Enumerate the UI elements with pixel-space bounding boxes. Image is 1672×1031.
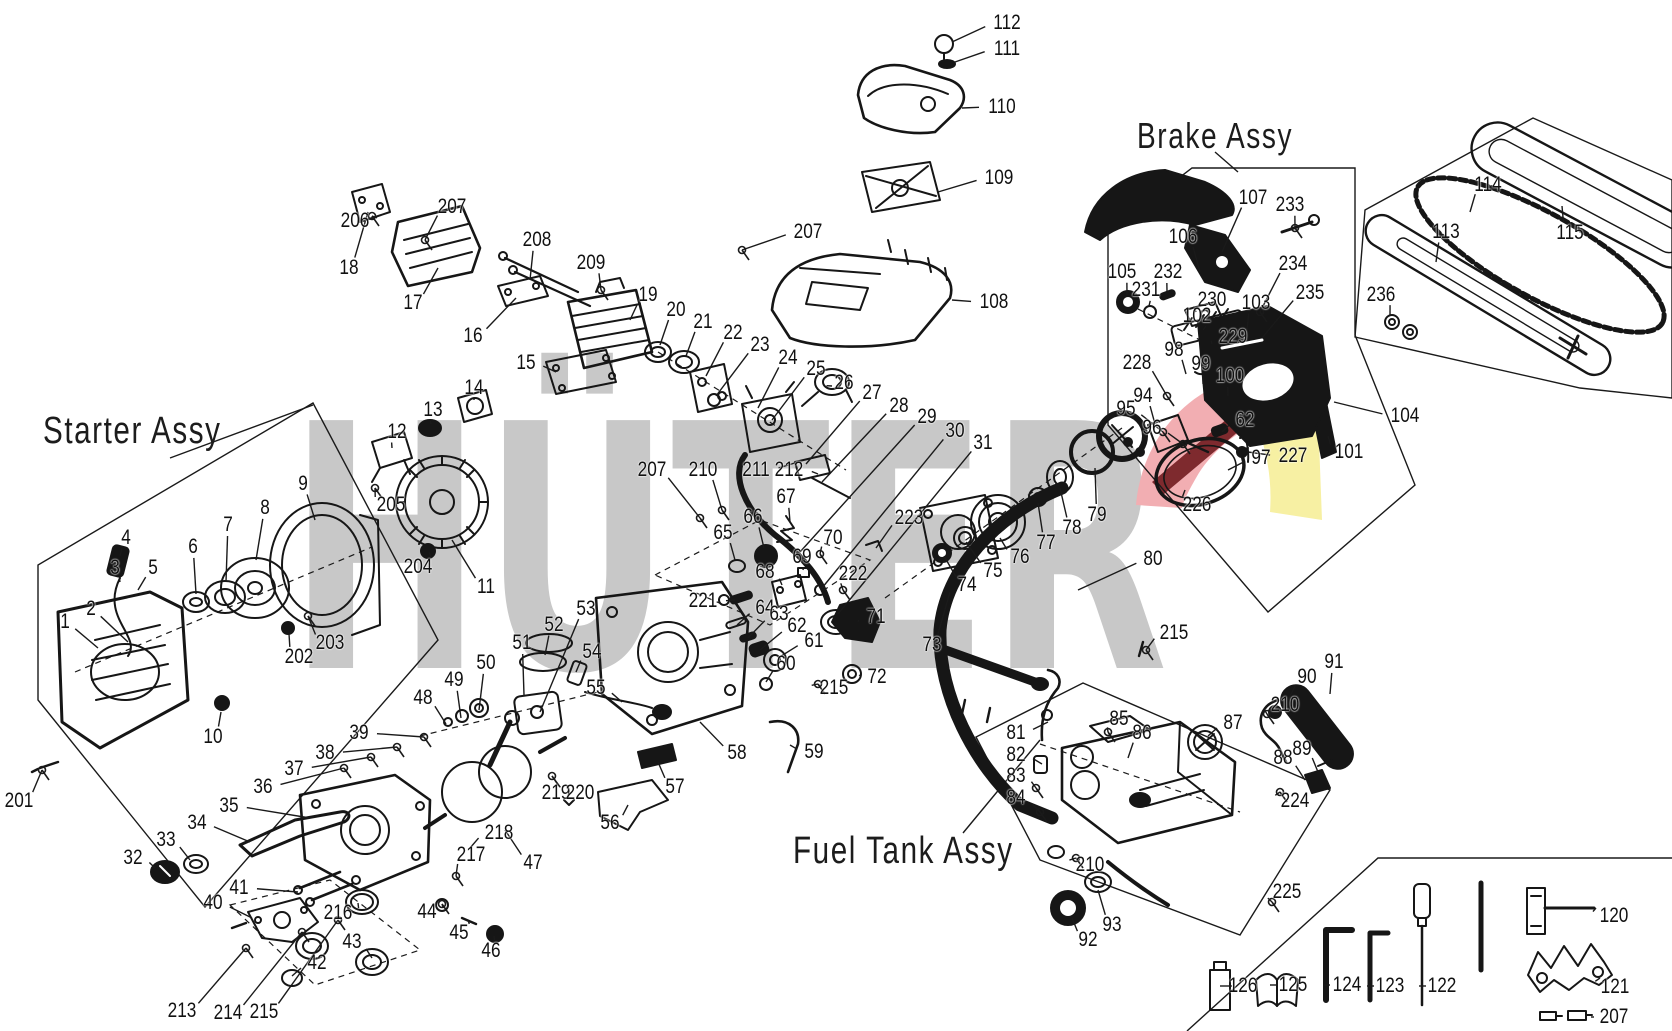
part-callout-97: 97 [1251,446,1270,470]
part-callout-220: 220 [566,781,595,805]
part-callout-99: 99 [1191,352,1210,376]
part-callout-62: 62 [1235,408,1254,432]
leader-line-93 [1098,890,1105,915]
part-callout-42: 42 [307,951,326,975]
part-callout-209: 209 [577,251,606,275]
part-callout-211: 211 [742,458,769,482]
part-callout-19: 19 [638,283,657,307]
part-callout-66: 66 [743,505,762,529]
part-callout-75: 75 [983,559,1002,583]
part-callout-35: 35 [219,794,238,818]
part-callout-102: 102 [1183,304,1212,328]
part-callout-26: 26 [834,371,853,395]
part-callout-27: 27 [862,381,881,405]
part-callout-234: 234 [1279,252,1308,276]
part-callout-84: 84 [1006,786,1025,810]
leader-line-71 [858,620,859,622]
leader-line-108 [952,300,971,301]
part-callout-207: 207 [638,458,667,482]
part-callout-222: 222 [839,562,868,586]
part-callout-65: 65 [713,521,732,545]
top-cover-parts [772,35,964,347]
leader-line-91 [1330,673,1332,694]
part-callout-86: 86 [1132,721,1151,745]
part-callout-217: 217 [457,843,486,867]
part-callout-93: 93 [1102,913,1121,937]
part-callout-224: 224 [1281,789,1310,813]
part-callout-1: 1 [60,610,70,634]
part-callout-83: 83 [1006,764,1025,788]
part-callout-51: 51 [512,631,531,655]
bar-chain-outline [1355,118,1672,398]
leader-line-16 [486,298,516,329]
part-callout-204: 204 [404,555,433,579]
part-callout-206: 206 [341,209,370,233]
part-callout-92: 92 [1078,928,1097,952]
part-callout-207: 207 [794,220,823,244]
part-callout-53: 53 [576,597,595,621]
chainsaw-parts-diagram: HÜTER [0,0,1672,1031]
part-callout-221: 221 [689,589,718,613]
part-callout-40: 40 [203,891,222,915]
part-callout-210: 210 [689,458,718,482]
part-callout-90: 90 [1297,665,1316,689]
leader-line-56 [623,805,628,815]
leader-line-229 [1211,340,1212,344]
part-callout-60: 60 [776,652,795,676]
part-callout-214: 214 [214,1001,243,1025]
part-callout-207: 207 [438,195,467,219]
part-callout-18: 18 [339,256,358,280]
part-callout-22: 22 [723,321,742,345]
leader-line-112 [952,27,985,42]
part-callout-49: 49 [444,668,463,692]
leader-line-41 [257,889,298,892]
part-callout-78: 78 [1062,516,1081,540]
leader-line-213 [198,948,246,1003]
part-callout-101: 101 [1335,440,1364,464]
part-callout-225: 225 [1273,880,1302,904]
leader-line-72 [859,675,860,676]
part-callout-212: 212 [775,458,804,482]
part-callout-67: 67 [776,485,795,509]
part-callout-43: 43 [342,930,361,954]
part-callout-112: 112 [993,11,1020,35]
part-callout-63: 63 [769,602,788,626]
leader-line-89 [1312,758,1318,772]
part-callout-77: 77 [1036,531,1055,555]
part-callout-226: 226 [1183,493,1212,517]
part-callout-58: 58 [727,741,746,765]
part-callout-122: 122 [1428,974,1457,998]
part-callout-236: 236 [1367,283,1396,307]
bar-chain-parts [1360,113,1672,380]
part-callout-76: 76 [1010,545,1029,569]
part-callout-115: 115 [1556,221,1583,245]
screw-glyph-206 [369,213,380,227]
leader-line-109 [938,180,977,192]
part-callout-216: 216 [324,901,353,925]
part-callout-109: 109 [985,166,1014,190]
brake-assy-label: Brake Assy [1137,115,1293,157]
part-callout-36: 36 [253,775,272,799]
part-callout-32: 32 [123,846,142,870]
part-callout-203: 203 [316,631,345,655]
part-callout-21: 21 [693,310,712,334]
part-callout-15: 15 [516,351,535,375]
screw-glyph-209 [598,287,609,301]
part-callout-205: 205 [377,493,406,517]
part-callout-14: 14 [464,376,483,400]
leader-line-33 [180,847,190,860]
part-callout-55: 55 [586,676,605,700]
part-callout-124: 124 [1333,973,1362,997]
part-callout-12: 12 [387,420,406,444]
part-callout-95: 95 [1116,397,1135,421]
screw-glyph-217 [453,873,464,887]
part-callout-3: 3 [110,556,120,580]
part-callout-88: 88 [1273,746,1292,770]
part-callout-207: 207 [1600,1005,1629,1029]
part-callout-91: 91 [1324,650,1343,674]
part-callout-113: 113 [1432,220,1459,244]
part-callout-74: 74 [957,573,976,597]
part-callout-210: 210 [1076,853,1105,877]
part-callout-213: 213 [168,999,197,1023]
part-callout-94: 94 [1133,384,1152,408]
leader-line-111 [955,52,985,62]
part-callout-6: 6 [188,535,198,559]
part-callout-57: 57 [665,775,684,799]
part-callout-215: 215 [1160,621,1189,645]
part-callout-29: 29 [917,405,936,429]
part-callout-229: 229 [1219,325,1248,349]
part-callout-121: 121 [1601,975,1630,999]
diagram-canvas: HÜTER [0,0,1672,1031]
part-callout-218: 218 [485,821,514,845]
part-callout-126: 126 [1229,974,1258,998]
part-callout-52: 52 [544,613,563,637]
part-callout-87: 87 [1223,711,1242,735]
part-callout-7: 7 [223,513,233,537]
leader-line-221 [726,600,735,601]
leader-line-216 [358,903,359,908]
part-callout-120: 120 [1600,904,1629,928]
part-callout-23: 23 [750,333,769,357]
leader-line-121 [1595,978,1600,981]
part-callout-61: 61 [804,629,823,653]
fuel-tank-assy-label: Fuel Tank Assy [793,830,1014,873]
leader-line-5 [138,577,146,590]
part-callout-71: 71 [866,605,885,629]
part-callout-210: 210 [1271,693,1300,717]
part-callout-215: 215 [250,1000,279,1024]
part-callout-5: 5 [148,556,158,580]
part-callout-89: 89 [1292,737,1311,761]
starter-assy-label: Starter Assy [43,410,221,453]
leader-line-104 [1334,402,1382,414]
part-callout-20: 20 [666,298,685,322]
leader-line-6 [194,558,196,594]
part-callout-16: 16 [463,324,482,348]
part-callout-17: 17 [403,291,422,315]
part-callout-41: 41 [229,876,248,900]
part-callout-2: 2 [86,597,96,621]
part-callout-108: 108 [980,290,1009,314]
part-callout-202: 202 [285,645,314,669]
part-callout-38: 38 [315,741,334,765]
part-callout-73: 73 [922,633,941,657]
leader-line-8 [256,519,263,560]
part-callout-69: 69 [792,545,811,569]
leader-line-208 [530,251,533,280]
part-callout-103: 103 [1242,291,1271,315]
leader-line-7 [226,536,228,582]
part-callout-227: 227 [1279,444,1308,468]
screw-glyph-36 [341,765,352,779]
part-callout-50: 50 [476,651,495,675]
part-callout-85: 85 [1109,707,1128,731]
part-callout-235: 235 [1296,281,1325,305]
part-callout-100: 100 [1216,364,1245,388]
part-callout-123: 123 [1376,974,1405,998]
leader-line-20 [660,320,669,345]
part-callout-72: 72 [867,665,886,689]
part-callout-9: 9 [298,472,308,496]
part-callout-13: 13 [423,398,442,422]
part-callout-30: 30 [945,419,964,443]
part-callout-80: 80 [1143,547,1162,571]
part-callout-45: 45 [449,921,468,945]
part-callout-70: 70 [823,526,842,550]
part-callout-201: 201 [5,789,34,813]
part-callout-11: 11 [477,575,495,599]
muffler-parts [352,184,590,306]
part-callout-44: 44 [417,900,436,924]
part-callout-4: 4 [121,526,131,550]
part-callout-81: 81 [1006,721,1025,745]
part-callout-111: 111 [994,37,1020,61]
part-callout-125: 125 [1279,973,1308,997]
part-callout-56: 56 [600,811,619,835]
part-callout-232: 232 [1154,260,1183,284]
leader-line-110 [962,107,979,108]
part-callout-208: 208 [523,228,552,252]
part-callout-104: 104 [1391,404,1420,428]
part-callout-98: 98 [1164,338,1183,362]
part-callout-25: 25 [806,357,825,381]
part-callout-106: 106 [1169,225,1198,249]
part-callout-79: 79 [1087,503,1106,527]
part-callout-33: 33 [156,828,175,852]
part-callout-59: 59 [804,740,823,764]
part-callout-47: 47 [523,851,542,875]
leader-line-207 [742,235,786,250]
part-callout-107: 107 [1239,186,1268,210]
part-callout-24: 24 [778,346,797,370]
part-callout-215: 215 [820,676,849,700]
leader-line-34 [214,827,250,842]
leader-line-1 [75,629,98,648]
part-callout-28: 28 [889,394,908,418]
part-callout-10: 10 [203,725,222,749]
part-callout-233: 233 [1276,193,1305,217]
part-callout-39: 39 [349,721,368,745]
part-callout-96: 96 [1142,416,1161,440]
part-callout-48: 48 [413,686,432,710]
part-callout-8: 8 [260,496,270,520]
part-callout-114: 114 [1474,173,1501,197]
screw-glyph-83 [1033,785,1044,799]
part-callout-68: 68 [755,560,774,584]
screw-glyph-213 [243,945,254,959]
part-callout-37: 37 [284,757,303,781]
screw-glyph-37 [368,754,379,768]
part-callout-46: 46 [481,939,500,963]
leader-line-214 [244,932,302,1005]
part-callout-223: 223 [895,506,924,530]
part-callout-54: 54 [582,640,601,664]
tool-kit-parts [1210,883,1612,1020]
part-callout-228: 228 [1123,351,1152,375]
part-callout-110: 110 [988,95,1015,119]
part-callout-31: 31 [973,431,992,455]
part-callout-34: 34 [187,811,206,835]
